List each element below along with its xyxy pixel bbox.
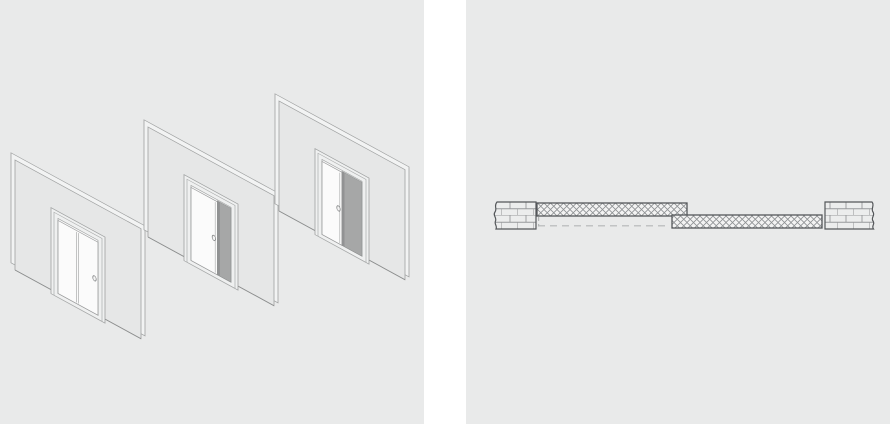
door-panel: [191, 187, 217, 274]
retracted-door-dashed-outline: [538, 217, 670, 227]
masonry-wall-left: [494, 202, 536, 229]
door-gap: [342, 171, 362, 256]
cassette-hatch: [537, 203, 687, 216]
pocket-cassette: [537, 203, 687, 216]
wall-door-closed: [11, 153, 145, 345]
isometric-door-sequence-canvas: [0, 0, 424, 424]
wall-door-open: [275, 94, 409, 286]
door-panel-plan: [672, 215, 822, 228]
brick-hatch: [494, 202, 536, 229]
plan-section-image[interactable]: [466, 0, 890, 424]
plan-section-canvas: [466, 0, 890, 424]
door-panel: [322, 161, 342, 245]
isometric-door-sequence-image[interactable]: [0, 0, 424, 424]
door-gap-shade: [342, 171, 345, 246]
wall-door-half-open: [144, 120, 278, 312]
masonry-wall-right: [825, 202, 874, 229]
door-hatch: [672, 215, 822, 228]
door-gap-shade: [217, 201, 220, 276]
brick-hatch: [825, 202, 874, 229]
